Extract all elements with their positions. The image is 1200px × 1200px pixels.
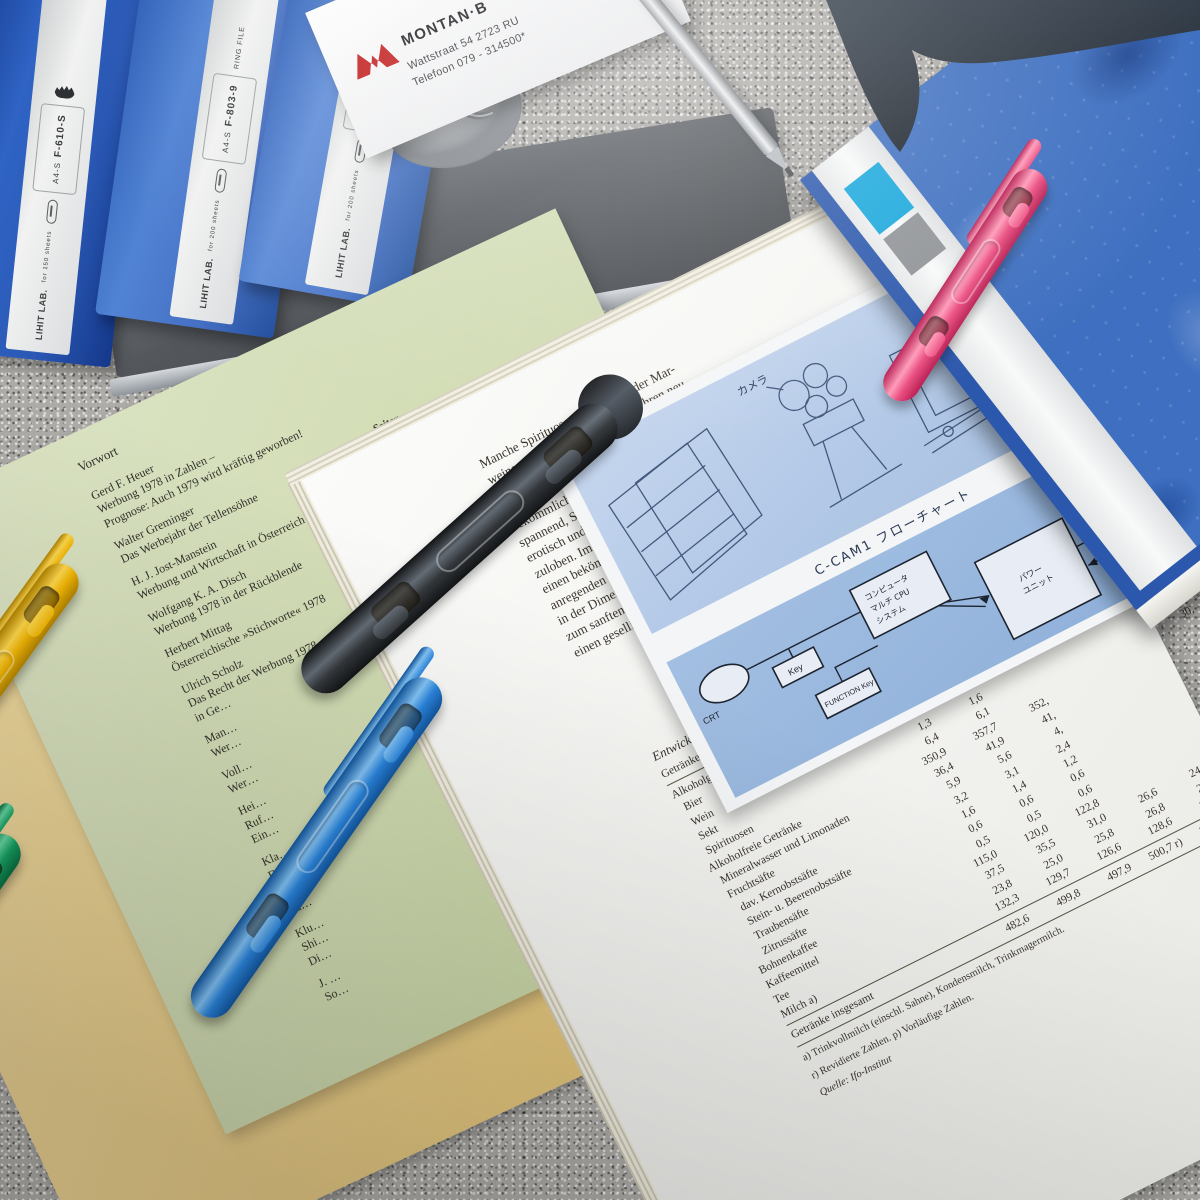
binder-model-box: F-803-9 A4-S (202, 73, 258, 165)
clip-hole (916, 313, 952, 352)
binder-spine-label: F-610-S A4-S for 150 sheets LIHIT LAB. (6, 0, 111, 355)
binder-size: A4-S (51, 162, 62, 185)
desk-photo: F-610-S A4-S for 150 sheets LIHIT LAB. R… (0, 0, 1200, 1200)
crt-label: CRT (701, 709, 722, 726)
binder-series: RING FILE (233, 26, 246, 70)
company-logo-icon (348, 40, 400, 80)
binder-brand: LIHIT LAB. (333, 227, 352, 279)
pencil-point (784, 166, 794, 177)
binder-capacity: for 150 sheets (42, 230, 53, 282)
binder-brand: LIHIT LAB. (198, 257, 215, 309)
binder-model: F-803-9 (223, 84, 240, 127)
clip-icon (214, 168, 227, 193)
camera-reel (774, 375, 814, 415)
printer-body (826, 0, 1200, 152)
crt-monitor-shape (693, 657, 755, 711)
binder-size: A4-S (220, 131, 232, 154)
binder-capacity: for 200 sheets (208, 199, 221, 251)
printer (812, 0, 1200, 170)
clip-icon (46, 199, 58, 224)
hedgehog-logo-icon (54, 83, 75, 99)
camera-label: カメラ (735, 372, 770, 399)
clip-hole (1000, 184, 1036, 223)
binder-brand: LIHIT LAB. (34, 289, 49, 341)
binder-model: F-610-S (52, 114, 67, 158)
binder-model-box: F-610-S A4-S (32, 103, 85, 195)
camera-body (803, 399, 864, 446)
